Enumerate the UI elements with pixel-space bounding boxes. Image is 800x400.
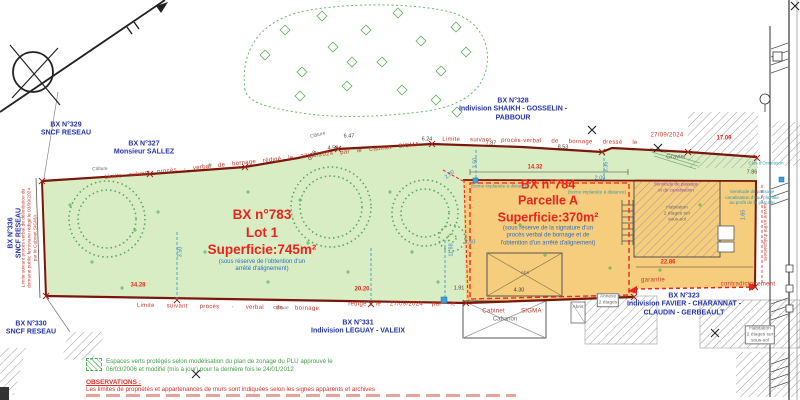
vegetation-zone: [244, 5, 487, 117]
hatch-sw: [62, 332, 106, 360]
north-compass: [0, 0, 168, 112]
cabanon-structure: [463, 301, 546, 338]
hatch-south-road: [736, 352, 800, 397]
abris-structure: [571, 302, 585, 323]
legend-protected-green-spaces: Espaces verts protégés selon modélisatio…: [86, 358, 333, 374]
fence-diagonal: [46, 297, 70, 332]
observations-line1: Les limites de propriétés et appartenanc…: [86, 386, 516, 393]
rail-limit-diagonal: [44, 92, 58, 178]
annex-box-1: [718, 226, 734, 240]
observations-block: OBSERVATIONS : Les limites de propriétés…: [86, 379, 516, 397]
habitation-building: [634, 181, 720, 257]
legend-line1: Espaces verts protégés selon modélisatio…: [106, 358, 333, 366]
plan-drawing: [0, 0, 800, 400]
observations-heading: OBSERVATIONS :: [86, 379, 516, 386]
rail-fence-line: [36, 178, 40, 298]
boundary-orange-north: [463, 180, 757, 181]
neighbor-building-hatch-ne: [688, 112, 758, 168]
cadastral-survey-plan: BX n°783 Lot 1 Superficie:745m² (sous ré…: [0, 0, 800, 400]
titleblock-corner: [0, 387, 9, 400]
boundary-east-road: [755, 181, 756, 287]
neighbor-building-hatch-road: [772, 122, 800, 166]
annexe-building: [585, 296, 657, 344]
green-space-hatch-icon: [86, 358, 102, 371]
observations-line2-clipped: [86, 394, 516, 397]
annex-box-2: [718, 242, 734, 252]
utility-symbols: [760, 52, 793, 312]
legend-line2: 06/03/2006 et modifié (mis à jour) pour …: [106, 366, 333, 374]
